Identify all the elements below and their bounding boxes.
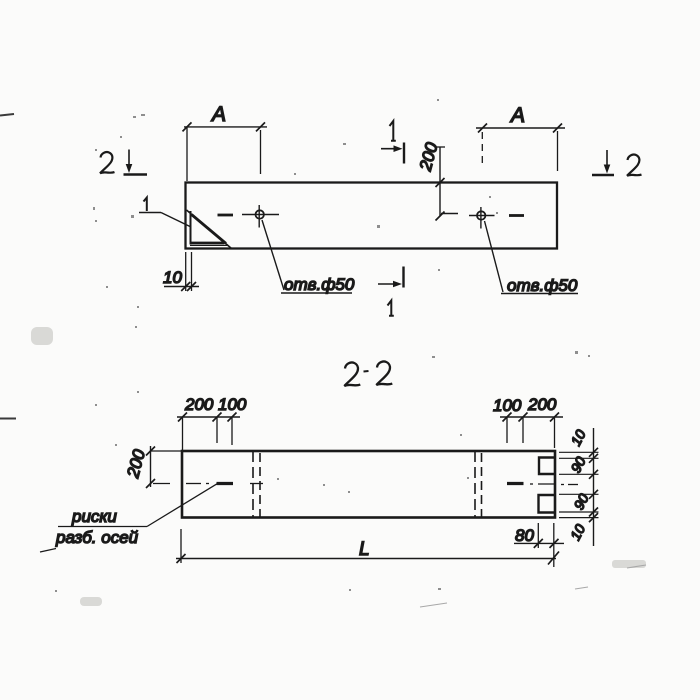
svg-text:200: 200 xyxy=(527,395,557,414)
svg-text:200: 200 xyxy=(416,140,442,174)
svg-text:100: 100 xyxy=(493,396,522,415)
svg-text:10: 10 xyxy=(163,268,182,287)
svg-text:80: 80 xyxy=(515,526,534,545)
svg-text:разб. осей: разб. осей xyxy=(55,528,139,547)
svg-text:A: A xyxy=(509,104,525,127)
svg-text:отв.ф50: отв.ф50 xyxy=(507,276,578,295)
svg-text:риски: риски xyxy=(71,507,117,526)
svg-text:100: 100 xyxy=(218,395,247,414)
svg-text:отв.ф50: отв.ф50 xyxy=(284,275,355,294)
svg-text:200: 200 xyxy=(184,395,214,414)
svg-text:10: 10 xyxy=(567,521,589,542)
svg-text:200: 200 xyxy=(123,447,149,481)
svg-text:A: A xyxy=(210,103,226,126)
svg-text:L: L xyxy=(359,539,370,560)
svg-text:90: 90 xyxy=(567,454,589,475)
svg-text:10: 10 xyxy=(567,427,589,448)
